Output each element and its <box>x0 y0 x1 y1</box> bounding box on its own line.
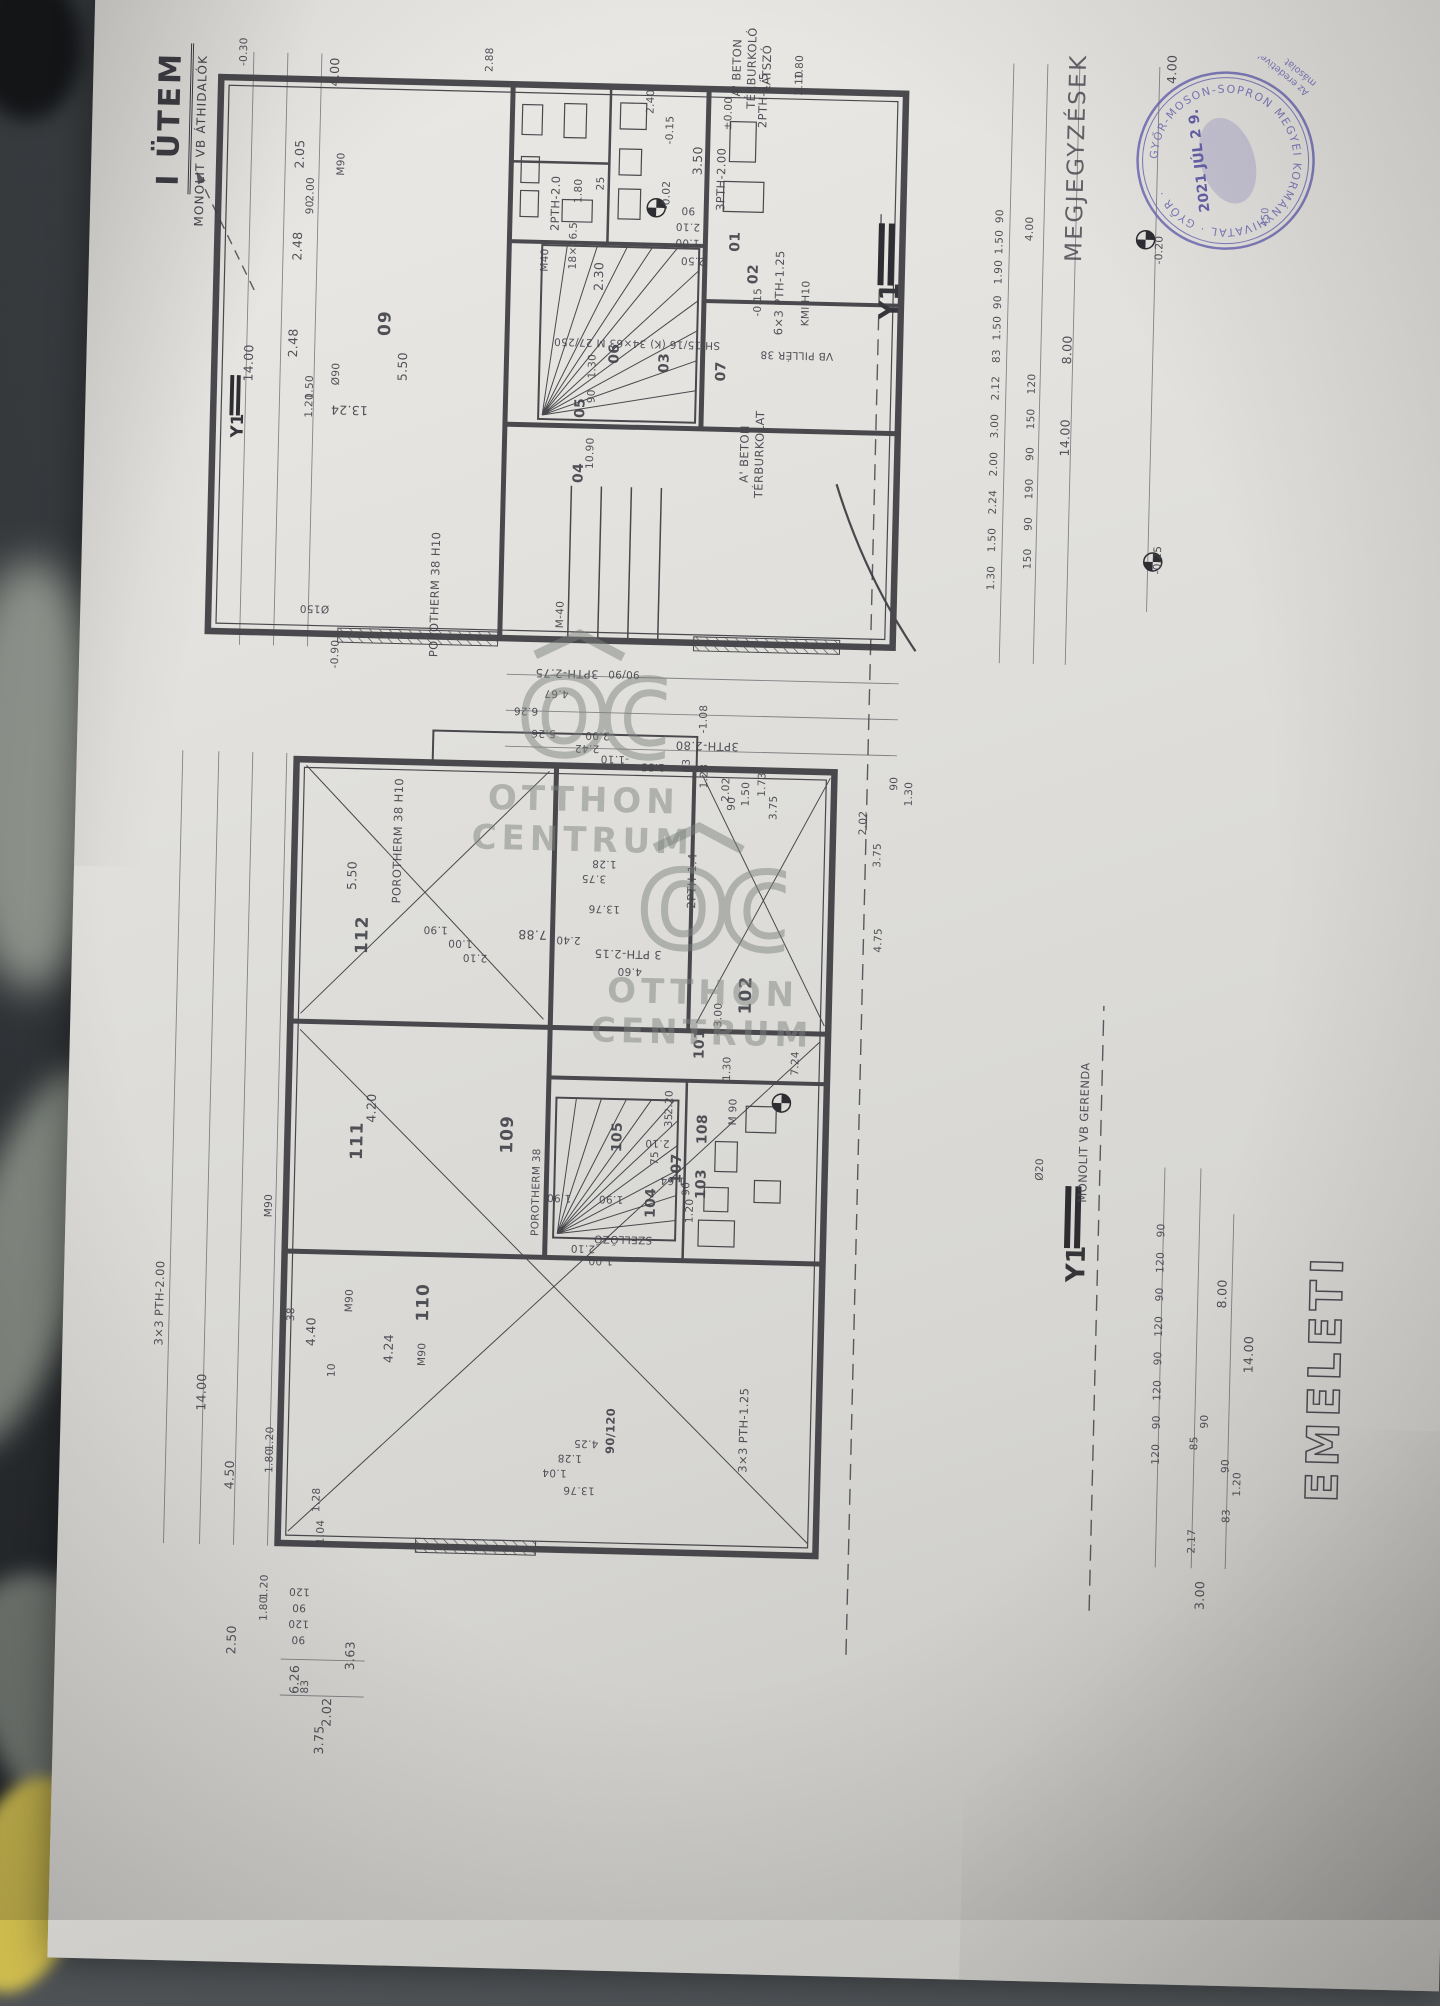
plan-label: 190 <box>1023 478 1036 499</box>
plan-label: 8.00 <box>1059 335 1075 364</box>
plan-label: Ø20 <box>1034 1158 1047 1181</box>
stamp-number: 450 <box>1260 207 1271 226</box>
plan-label: 05 <box>572 398 588 418</box>
plan-label: 2.10 <box>570 1242 595 1255</box>
plan-label: 90 <box>680 1182 692 1196</box>
plan-label: 3.75 <box>311 1725 327 1754</box>
plan-label: 2.12 <box>990 376 1003 401</box>
plan-label: 90 <box>1022 517 1034 531</box>
plan-label: 14.00 <box>1057 419 1073 457</box>
plan-label: 2.48 <box>285 328 301 357</box>
plan-label: 90 <box>304 200 316 214</box>
plan-label: 90 <box>681 204 695 216</box>
plan-label: 2.00 <box>304 177 317 202</box>
plan-label: 4.24 <box>380 1334 396 1363</box>
plan-label: 2.40 <box>556 934 581 947</box>
plan-label: 90/120 <box>603 1408 618 1454</box>
plan-label: 3.00 <box>989 414 1002 439</box>
plan-label: 5.50 <box>394 352 410 381</box>
plan-label: 110 <box>413 1283 434 1322</box>
plan-label: VB PILLÉR 38 <box>760 348 833 362</box>
plan-label: 150 <box>1022 548 1035 569</box>
plan-label: 83 <box>299 1679 311 1693</box>
plan-label: 3×3 PTH-1.25 <box>735 1388 751 1473</box>
plan-label: 1.90 <box>992 260 1005 285</box>
plan-label: 1.20 <box>264 1426 277 1451</box>
plan-label: 83 <box>1220 1509 1232 1523</box>
plan-label: -0.15 <box>752 288 765 317</box>
plan-label: 90 <box>992 295 1004 309</box>
plan-label: 1.80 <box>793 55 806 80</box>
plan-label: 07 <box>713 361 729 381</box>
plan-label: 105 <box>609 1122 626 1153</box>
plan-label: 2.17 <box>1186 1529 1199 1554</box>
plan-label: POROTHERM 38 H10 <box>426 532 443 658</box>
plan-label: M90 <box>335 152 348 176</box>
svg-text:EMELETI: EMELETI <box>1297 1251 1354 1503</box>
plan-label: 90 <box>292 1601 306 1613</box>
plan-label: ±0.00 <box>722 97 735 131</box>
plan-label: 103 <box>693 1169 710 1200</box>
plan-label: 3PTH-2.00 <box>713 148 729 212</box>
plan-label: 2.48 <box>289 231 305 260</box>
plan-label: A' BETON <box>729 39 744 97</box>
plan-label: 38 <box>285 1307 297 1321</box>
roof-icon <box>535 633 624 657</box>
otthon-centrum-logo: OC <box>624 817 788 971</box>
plan-label: 1.20 <box>258 1574 271 1599</box>
plan-label: TÉRBURKOLÓ <box>744 27 760 109</box>
plan-label: 90 <box>1154 1287 1166 1301</box>
plan-label: M-40 <box>554 601 567 629</box>
plan-label: 2.00 <box>988 452 1001 477</box>
svg-text:OC: OC <box>518 656 668 779</box>
sheet-title: EMELETI <box>1285 1228 1364 1510</box>
plan-label: 1.30 <box>903 782 916 807</box>
plan-label: SZELLŐZŐ <box>594 1233 653 1246</box>
plan-label: 120 <box>1026 373 1039 394</box>
plan-label: -0.90 <box>329 640 342 669</box>
plan-label: 112 <box>352 915 373 954</box>
plan-label: 14.00 <box>240 344 256 382</box>
plan-label: 1.28 <box>310 1487 323 1512</box>
approval-stamp: MEGJEGYZÉSEK: GYŐR-MOSON-SOPRON MEGYEI K… <box>1045 51 1360 269</box>
roof-icon <box>655 826 744 850</box>
plan-label: 1.20 <box>1231 1472 1244 1497</box>
plan-label: 14.00 <box>1240 1336 1256 1374</box>
svg-text:OC: OC <box>638 849 788 972</box>
plan-label: M90 <box>262 1194 275 1218</box>
plan-label: 1.30 <box>985 566 998 591</box>
plan-label: 13.76 <box>563 1484 595 1497</box>
plan-label: 01 <box>727 231 743 251</box>
plan-label: 1.28 <box>557 1452 582 1465</box>
plan-label: 3.00 <box>1192 1581 1208 1610</box>
plan-label: 120 <box>288 1617 309 1630</box>
plan-label: 1.50 <box>986 528 999 553</box>
plan-label: 06 <box>606 344 622 364</box>
plan-label: M40 <box>539 248 552 272</box>
plan-label: 03 <box>656 353 672 373</box>
plan-label: POROTHERM 38 H10 <box>389 778 406 904</box>
plan-label: 120 <box>1153 1316 1166 1337</box>
plan-label: 1.00 <box>588 1254 613 1267</box>
plan-label: 4.25 <box>574 1437 599 1450</box>
plan-label: 104 <box>643 1188 660 1219</box>
plan-label: 09 <box>375 310 396 336</box>
plan-label: 10 <box>326 1363 338 1377</box>
photo-of-floorplan: { "titles": { "phase": "I ÜTEM", "phase_… <box>0 0 1440 1920</box>
plan-label: 1.00 <box>448 937 473 950</box>
plan-label: 2PTH-2.0 <box>548 175 563 231</box>
plan-label: 90 <box>291 1633 305 1645</box>
plan-label: 3×3 PTH-2.00 <box>151 1260 167 1345</box>
plan-label: 1.80 <box>258 1596 271 1621</box>
plan-label: 2.88 <box>484 47 497 72</box>
plan-label: 1.04 <box>542 1466 567 1479</box>
plan-label: 3.75 <box>871 843 884 868</box>
plan-label: 18×16.5 <box>567 222 580 270</box>
plan-label: 2.10 <box>645 1137 670 1150</box>
plan-label: 4.00 <box>327 57 343 86</box>
plan-label: 1.80 <box>572 178 585 203</box>
plan-label: 1.00 <box>675 236 700 249</box>
plan-label: KMI H10 <box>799 280 812 326</box>
plan-label: 2.05 <box>292 139 308 168</box>
plan-label: 85 <box>1188 1436 1200 1450</box>
plan-label: 02 <box>745 264 761 284</box>
plan-label: 120 <box>1154 1252 1167 1273</box>
plan-label: 83 <box>991 349 1003 363</box>
plan-label: 120 <box>289 1585 310 1598</box>
plan-label: Ø90 <box>330 363 343 386</box>
plan-label: 1.50 <box>991 316 1004 341</box>
plan-label: 1.30 <box>586 354 599 379</box>
plan-label: 04 <box>571 463 587 483</box>
plan-label: 90 <box>1155 1223 1167 1237</box>
plan-label: 1.90 <box>547 1191 572 1204</box>
plan-label: TÉRBURKOLAT <box>751 410 767 498</box>
plan-label: 111 <box>347 1121 368 1160</box>
plan-label: 4.00 <box>1024 216 1037 241</box>
plan-label: 35 <box>663 1113 675 1127</box>
plan-label: M90 <box>416 1343 429 1367</box>
plan-label: 2.20 <box>663 1090 676 1115</box>
otthon-centrum-logo: OC <box>504 624 668 778</box>
plan-label: 90 <box>1199 1414 1211 1428</box>
plan-label: 2.50 <box>223 1625 239 1654</box>
otthon-centrum-watermark: OC OTTHON CENTRUM <box>582 816 828 1056</box>
plan-label: 2.50 <box>681 254 706 267</box>
plan-label: 7.88 <box>518 927 547 943</box>
plan-label: -0.02 <box>660 181 673 210</box>
plan-label: 90 <box>1151 1415 1163 1429</box>
plan-label: 1.90 <box>599 1193 624 1206</box>
plan-label: 1.04 <box>315 1520 328 1545</box>
plan-label: 120 <box>1150 1444 1163 1465</box>
plan-label: 4.20 <box>363 1093 379 1122</box>
plan-label: 4.40 <box>303 1317 319 1346</box>
plan-label: 2.40 <box>645 89 658 114</box>
plan-label: 2.10 <box>675 220 700 233</box>
plan-label: 120 <box>1151 1380 1164 1401</box>
plan-label: 90 <box>1024 447 1036 461</box>
plan-label: -0.30 <box>238 37 251 66</box>
plan-label: 1.73 <box>756 772 769 797</box>
plan-label: 150 <box>1025 408 1038 429</box>
plan-label: Ø150 <box>299 602 329 615</box>
plan-label: 1.90 <box>423 923 448 936</box>
plan-label: -0.15 <box>664 116 677 145</box>
plan-label: A' BETON <box>737 425 752 483</box>
plan-label: 14.00 <box>193 1373 209 1411</box>
plan-label: 109 <box>497 1115 518 1154</box>
plan-label: 90 <box>1152 1351 1164 1365</box>
plan-label: 3.75 <box>767 795 780 820</box>
phase-title: I ÜTEM <box>150 43 194 195</box>
plan-label: 108 <box>694 1114 711 1145</box>
plan-label: 1.50 <box>993 230 1006 255</box>
plan-label: 5.50 <box>344 861 360 890</box>
plan-label: M 90 <box>727 1098 740 1125</box>
plan-label: 4.50 <box>221 1460 237 1489</box>
plan-label: 3.50 <box>690 146 706 175</box>
plan-label: 90 <box>888 777 900 791</box>
plan-label: 1.30 <box>721 1056 734 1081</box>
plan-label: 1.20 <box>683 1198 696 1223</box>
plan-label: 90 <box>994 209 1006 223</box>
plan-label: MONOLIT VB GERENDA <box>1075 1062 1092 1203</box>
plan-label: 2.24 <box>987 490 1000 515</box>
plan-label: 6×3 PTH-1.25 <box>771 250 787 335</box>
plan-label: -0.25 <box>1151 546 1164 575</box>
plan-label: 25 <box>595 176 607 190</box>
plan-label: 3.63 <box>342 1641 358 1670</box>
plan-label: 1.20 <box>303 393 316 418</box>
plan-label: 2.02 <box>319 1697 335 1726</box>
plan-label: 2.02 <box>857 811 870 836</box>
plan-label: LÁTSZÓ <box>759 45 774 93</box>
plan-label: 2.02 <box>720 777 733 802</box>
plan-label: 1.50 <box>740 782 753 807</box>
plan-label: 90 <box>1220 1459 1232 1473</box>
plan-label: 13.24 <box>330 402 368 418</box>
plan-label: 2.30 <box>591 262 607 291</box>
plan-label: 75 <box>649 1151 661 1165</box>
plan-label: 1.80 <box>263 1448 276 1473</box>
plan-label: SH 15/16 (K) 34×63 M 27/250 <box>554 335 720 351</box>
plan-label: 8.00 <box>1214 1279 1230 1308</box>
blueprint-paper: Y1 Y1 Y1 -0.304.002.052.00902.482.4814.0… <box>47 0 1440 1991</box>
plan-label: M90 <box>343 1289 356 1313</box>
notes-heading: MEGJEGYZÉSEK: <box>1059 51 1092 262</box>
plan-label: POROTHERM 38 <box>529 1148 543 1236</box>
plan-label: 2.10 <box>462 951 487 964</box>
plan-label: 4.75 <box>872 928 885 953</box>
